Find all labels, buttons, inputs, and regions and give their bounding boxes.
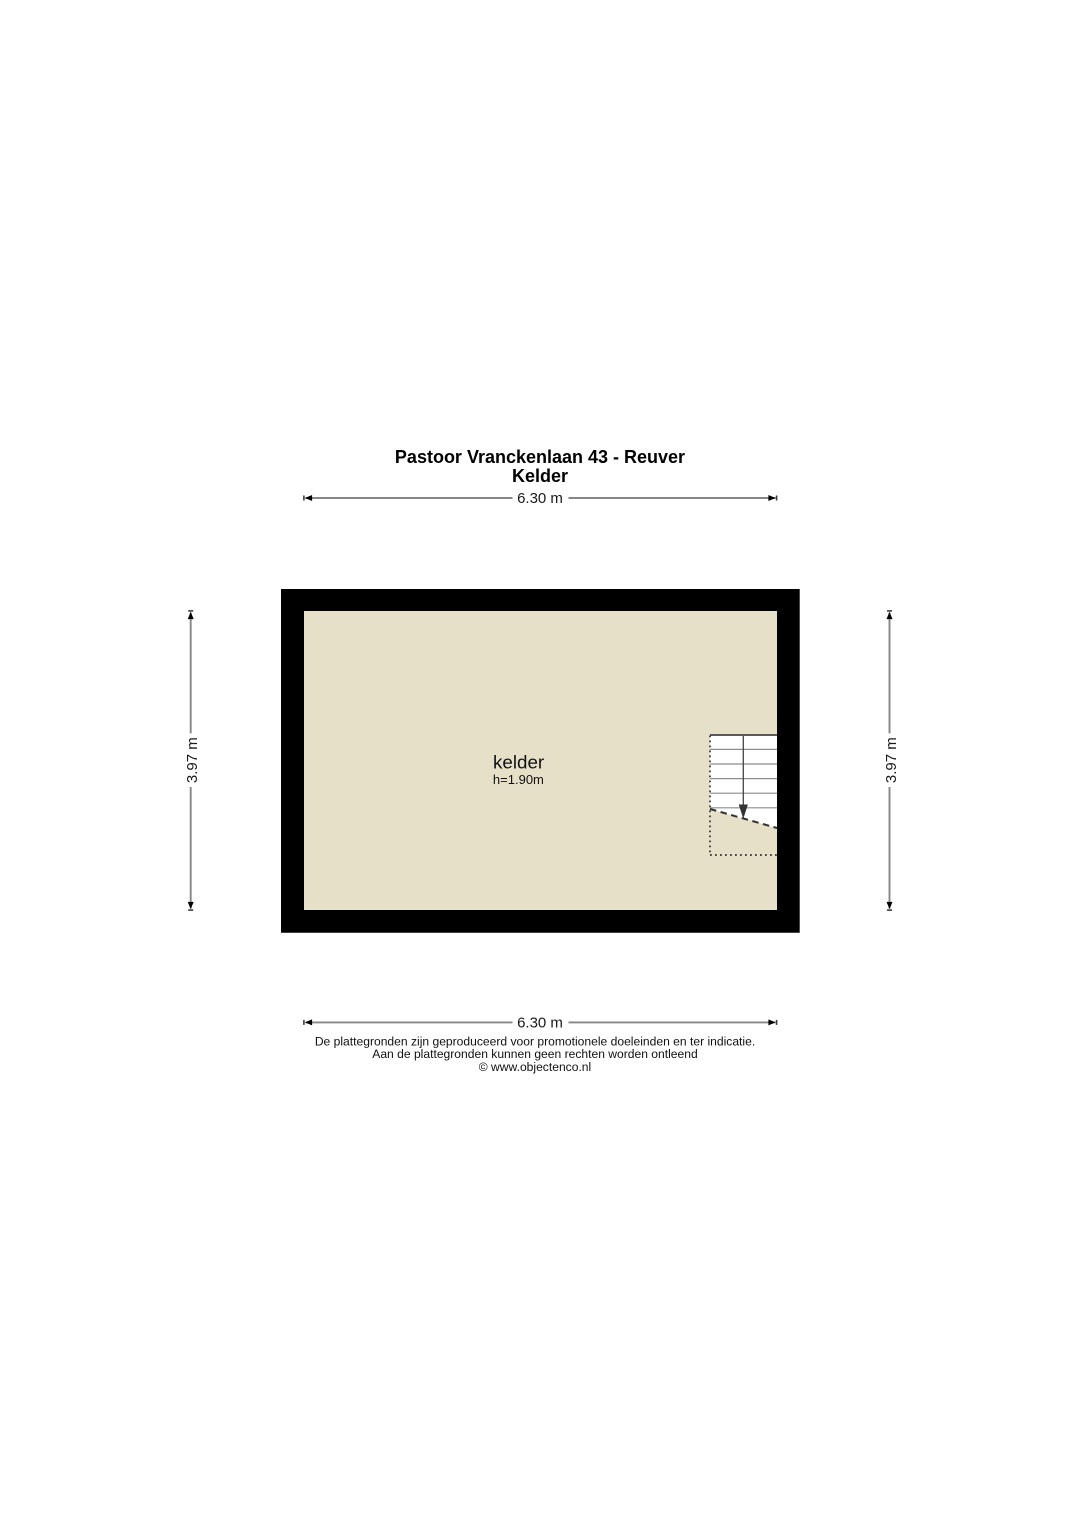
svg-text:6.30 m: 6.30 m bbox=[517, 1015, 563, 1032]
svg-text:h=1.90m: h=1.90m bbox=[493, 772, 544, 787]
svg-text:3.97 m: 3.97 m bbox=[883, 737, 900, 783]
svg-text:6.30 m: 6.30 m bbox=[517, 490, 563, 507]
svg-text:Pastoor Vranckenlaan 43 - Reuv: Pastoor Vranckenlaan 43 - Reuver bbox=[395, 447, 685, 467]
svg-text:Kelder: Kelder bbox=[512, 466, 568, 486]
svg-text:3.97 m: 3.97 m bbox=[184, 737, 201, 783]
svg-text:kelder: kelder bbox=[493, 751, 544, 772]
svg-text:© www.objectenco.nl: © www.objectenco.nl bbox=[479, 1060, 591, 1074]
